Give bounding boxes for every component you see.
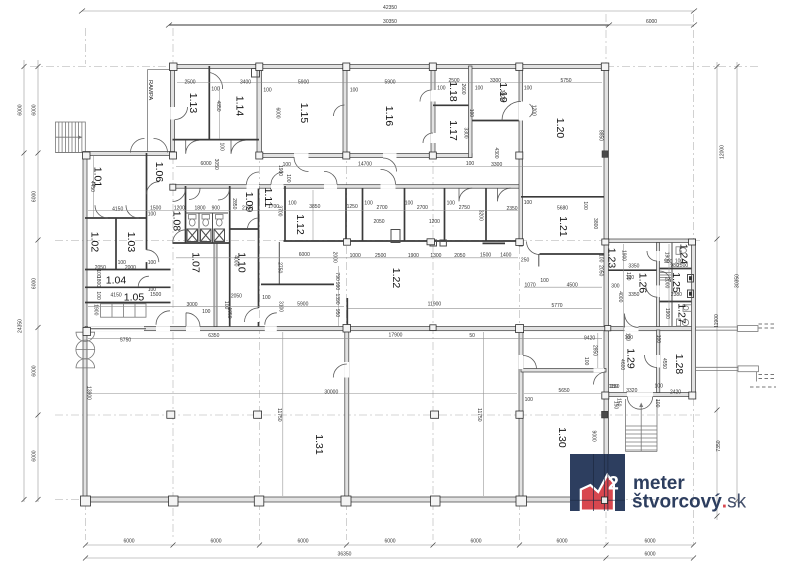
- svg-text:1.15: 1.15: [298, 103, 310, 124]
- svg-text:2050: 2050: [454, 253, 465, 259]
- svg-text:5770: 5770: [551, 303, 562, 309]
- svg-text:1900: 1900: [408, 253, 419, 259]
- svg-text:50: 50: [469, 333, 475, 339]
- svg-text:1.20: 1.20: [554, 118, 566, 139]
- svg-text:2850: 2850: [592, 345, 598, 356]
- svg-text:1.03: 1.03: [125, 232, 137, 253]
- svg-text:3350: 3350: [628, 292, 639, 298]
- svg-text:100: 100: [525, 397, 534, 403]
- svg-text:5900: 5900: [384, 80, 395, 86]
- svg-text:1.23: 1.23: [606, 248, 618, 269]
- svg-text:3100: 3100: [278, 301, 284, 312]
- svg-text:2700: 2700: [376, 205, 387, 211]
- svg-text:100: 100: [654, 399, 660, 408]
- svg-text:6000: 6000: [200, 161, 211, 167]
- svg-text:1.26: 1.26: [637, 273, 649, 294]
- svg-text:3300: 3300: [463, 127, 469, 138]
- svg-text:6000: 6000: [32, 450, 38, 461]
- svg-text:6000: 6000: [123, 539, 134, 545]
- svg-text:6350: 6350: [208, 333, 219, 339]
- svg-text:6000: 6000: [32, 278, 38, 289]
- svg-text:4150: 4150: [112, 206, 123, 212]
- svg-text:1070: 1070: [525, 282, 536, 288]
- svg-text:4150: 4150: [111, 293, 122, 299]
- svg-text:3800: 3800: [499, 90, 505, 101]
- svg-text:1900: 1900: [93, 304, 99, 315]
- svg-text:1.21: 1.21: [557, 216, 569, 237]
- svg-text:100: 100: [447, 200, 456, 206]
- svg-text:1500: 1500: [480, 252, 491, 258]
- svg-text:2000: 2000: [331, 252, 337, 263]
- svg-text:2050: 2050: [231, 293, 242, 299]
- svg-text:7350: 7350: [716, 440, 722, 451]
- svg-text:1200: 1200: [174, 205, 185, 211]
- svg-text:5650: 5650: [558, 388, 569, 394]
- svg-text:6000: 6000: [32, 104, 38, 115]
- svg-text:4450: 4450: [89, 181, 95, 192]
- svg-text:štvorcový.sk: štvorcový.sk: [632, 492, 747, 513]
- svg-text:1.12: 1.12: [294, 214, 306, 235]
- svg-text:900: 900: [212, 205, 221, 211]
- svg-text:1800: 1800: [95, 276, 101, 287]
- svg-text:5900: 5900: [298, 80, 309, 86]
- svg-text:100: 100: [524, 200, 533, 206]
- svg-text:1.17: 1.17: [447, 120, 459, 141]
- svg-text:6000: 6000: [644, 539, 655, 545]
- svg-text:12000: 12000: [719, 145, 725, 159]
- svg-text:1.28: 1.28: [673, 354, 685, 375]
- svg-text:6000: 6000: [644, 552, 655, 558]
- svg-text:3350: 3350: [628, 263, 639, 269]
- svg-text:5750: 5750: [120, 338, 131, 344]
- svg-text:100: 100: [350, 88, 359, 94]
- svg-text:100: 100: [540, 278, 549, 284]
- svg-text:6000: 6000: [384, 539, 395, 545]
- svg-text:1.29: 1.29: [625, 348, 637, 369]
- svg-text:100: 100: [655, 384, 664, 390]
- svg-text:1.22: 1.22: [390, 268, 402, 289]
- svg-text:2500: 2500: [184, 80, 195, 86]
- svg-text:1150: 1150: [609, 384, 620, 390]
- svg-text:300: 300: [611, 284, 620, 290]
- svg-text:1.06: 1.06: [153, 162, 165, 183]
- svg-text:9420: 9420: [584, 336, 595, 342]
- svg-text:17900: 17900: [389, 332, 403, 338]
- svg-text:1.07: 1.07: [190, 252, 202, 273]
- svg-text:1800: 1800: [194, 205, 205, 211]
- svg-text:1200: 1200: [429, 219, 440, 225]
- svg-text:1900: 1900: [664, 308, 670, 319]
- svg-text:100: 100: [475, 86, 484, 92]
- svg-text:1.05: 1.05: [124, 292, 145, 304]
- svg-text:2100: 2100: [242, 205, 253, 211]
- svg-text:100: 100: [625, 333, 631, 342]
- svg-text:11750: 11750: [476, 408, 482, 422]
- svg-text:1.18: 1.18: [447, 81, 459, 102]
- svg-text:3320: 3320: [626, 388, 637, 394]
- svg-text:100: 100: [211, 87, 220, 93]
- svg-text:3700: 3700: [277, 205, 283, 216]
- svg-text:RAMPA: RAMPA: [147, 80, 153, 100]
- svg-text:4550: 4550: [661, 358, 667, 369]
- svg-text:6000: 6000: [275, 107, 281, 118]
- svg-text:13900: 13900: [85, 386, 91, 400]
- svg-text:3800: 3800: [592, 218, 598, 229]
- svg-text:100: 100: [466, 161, 475, 167]
- svg-text:2000: 2000: [664, 277, 670, 288]
- svg-text:1500: 1500: [150, 205, 161, 211]
- svg-text:1390: 1390: [334, 293, 340, 304]
- svg-text:100: 100: [364, 200, 373, 206]
- svg-text:4000: 4000: [617, 291, 623, 302]
- svg-text:3300: 3300: [490, 78, 501, 84]
- svg-text:100: 100: [95, 291, 101, 300]
- svg-text:6000: 6000: [297, 539, 308, 545]
- svg-text:100: 100: [405, 200, 414, 206]
- svg-text:11900: 11900: [714, 314, 720, 328]
- svg-text:100: 100: [148, 287, 157, 293]
- svg-text:3200: 3200: [478, 210, 484, 221]
- svg-text:1950: 1950: [226, 307, 232, 318]
- svg-text:100: 100: [582, 201, 588, 210]
- svg-text:990: 990: [334, 282, 340, 291]
- svg-text:30350: 30350: [735, 274, 741, 288]
- svg-text:5900: 5900: [297, 301, 308, 307]
- svg-text:2500: 2500: [375, 253, 386, 259]
- svg-text:2000: 2000: [125, 265, 136, 271]
- svg-text:100: 100: [598, 254, 604, 263]
- svg-text:8850: 8850: [597, 130, 603, 141]
- svg-text:3050: 3050: [213, 159, 219, 170]
- svg-text:1200: 1200: [531, 105, 537, 116]
- svg-text:24350: 24350: [18, 319, 24, 333]
- svg-text:2: 2: [608, 473, 619, 495]
- svg-text:3400: 3400: [240, 80, 251, 86]
- svg-text:1.16: 1.16: [383, 106, 395, 127]
- svg-text:100: 100: [524, 86, 533, 92]
- svg-text:6000: 6000: [32, 191, 38, 202]
- svg-text:4850: 4850: [215, 100, 221, 111]
- svg-text:1900: 1900: [620, 250, 626, 261]
- svg-text:2380: 2380: [671, 292, 682, 298]
- svg-text:1300: 1300: [430, 253, 441, 259]
- svg-text:14700: 14700: [358, 161, 372, 167]
- svg-text:1.14: 1.14: [234, 96, 246, 117]
- svg-text:100: 100: [583, 357, 589, 366]
- svg-text:1.13: 1.13: [187, 93, 199, 114]
- svg-text:1.27: 1.27: [676, 303, 688, 324]
- svg-text:100: 100: [675, 259, 684, 265]
- svg-text:2500: 2500: [448, 78, 459, 84]
- svg-text:100: 100: [148, 212, 157, 218]
- svg-text:2850: 2850: [231, 198, 237, 209]
- svg-text:2700: 2700: [417, 205, 428, 211]
- svg-text:6000: 6000: [470, 539, 481, 545]
- svg-text:100: 100: [468, 109, 474, 118]
- svg-text:2050: 2050: [373, 219, 384, 225]
- svg-text:6000: 6000: [32, 365, 38, 376]
- svg-text:2600: 2600: [460, 83, 466, 94]
- svg-text:9000: 9000: [590, 431, 596, 442]
- svg-text:100: 100: [437, 86, 446, 92]
- svg-text:150: 150: [616, 398, 622, 407]
- svg-text:4500: 4500: [567, 282, 578, 288]
- svg-text:100: 100: [219, 143, 225, 152]
- svg-text:6000: 6000: [299, 252, 310, 258]
- svg-text:2350: 2350: [506, 206, 517, 212]
- svg-text:2050: 2050: [598, 265, 604, 276]
- svg-text:1.02: 1.02: [89, 232, 101, 253]
- svg-text:100: 100: [625, 272, 631, 281]
- svg-text:2750: 2750: [459, 205, 470, 211]
- svg-text:1.08: 1.08: [171, 211, 183, 232]
- svg-text:100: 100: [263, 88, 272, 94]
- svg-text:30000: 30000: [324, 389, 338, 395]
- svg-text:1900: 1900: [277, 165, 283, 176]
- svg-text:3000: 3000: [186, 302, 197, 308]
- svg-text:1250: 1250: [347, 204, 358, 210]
- svg-text:100: 100: [262, 295, 271, 301]
- svg-text:2750: 2750: [277, 262, 283, 273]
- svg-text:6000: 6000: [18, 104, 24, 115]
- svg-text:100: 100: [148, 260, 157, 266]
- svg-text:1900: 1900: [664, 252, 670, 263]
- svg-text:100: 100: [655, 335, 661, 344]
- svg-text:1.25: 1.25: [670, 272, 682, 293]
- svg-text:100: 100: [202, 309, 211, 315]
- svg-text:1.31: 1.31: [313, 434, 325, 455]
- svg-text:4300: 4300: [493, 147, 499, 158]
- svg-text:5750: 5750: [560, 78, 571, 84]
- svg-text:100: 100: [285, 174, 291, 183]
- svg-text:250: 250: [521, 257, 530, 263]
- svg-text:4000: 4000: [233, 255, 239, 266]
- svg-text:1400: 1400: [500, 252, 511, 258]
- svg-text:790: 790: [334, 272, 340, 281]
- svg-text:11900: 11900: [428, 301, 442, 307]
- svg-text:4600: 4600: [619, 359, 625, 370]
- svg-text:2420: 2420: [670, 389, 681, 395]
- svg-text:6000: 6000: [556, 539, 567, 545]
- svg-text:1.30: 1.30: [556, 427, 568, 448]
- svg-text:11750: 11750: [276, 408, 282, 422]
- svg-text:30350: 30350: [383, 19, 397, 25]
- svg-text:6000: 6000: [210, 539, 221, 545]
- svg-text:1000: 1000: [350, 253, 361, 259]
- svg-text:42350: 42350: [383, 5, 397, 11]
- svg-text:5680: 5680: [557, 205, 568, 211]
- svg-text:950: 950: [334, 309, 340, 318]
- svg-text:1.04: 1.04: [106, 275, 127, 287]
- svg-text:6000: 6000: [646, 19, 657, 25]
- svg-text:3300: 3300: [491, 162, 502, 168]
- svg-text:36350: 36350: [338, 552, 352, 558]
- svg-text:100: 100: [288, 200, 297, 206]
- svg-text:3850: 3850: [309, 204, 320, 210]
